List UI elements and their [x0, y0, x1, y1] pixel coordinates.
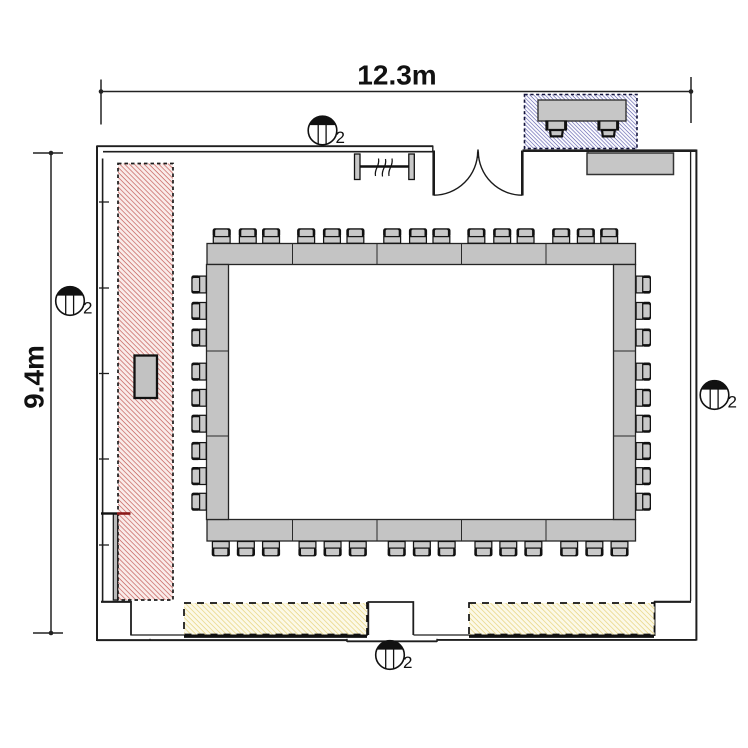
svg-text:2: 2	[336, 128, 345, 147]
svg-text:2: 2	[83, 299, 92, 318]
svg-text:2: 2	[403, 653, 412, 672]
svg-text:9.4m: 9.4m	[19, 345, 50, 409]
svg-text:2: 2	[728, 393, 737, 412]
svg-text:12.3m: 12.3m	[357, 60, 436, 91]
